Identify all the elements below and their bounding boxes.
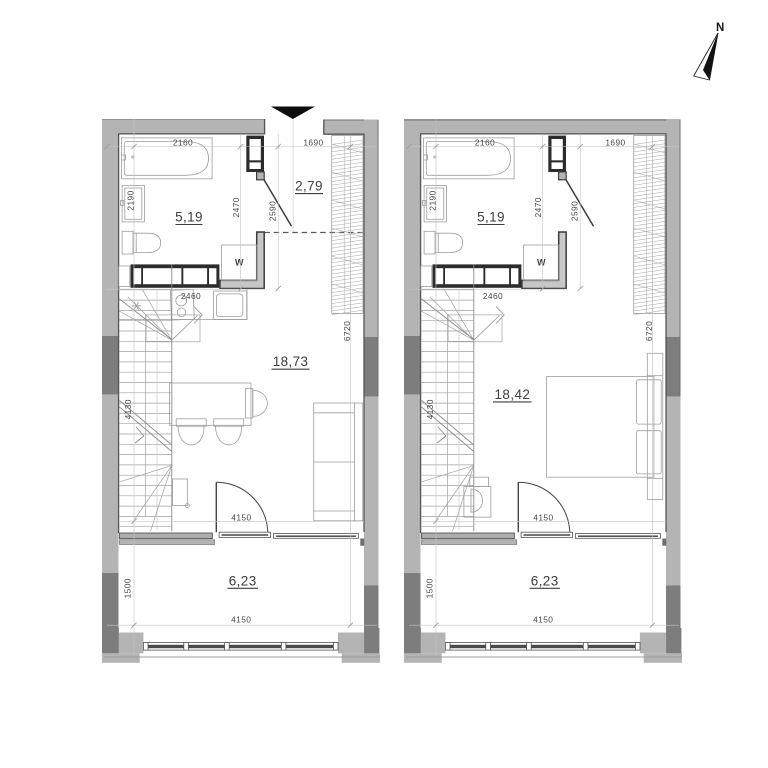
svg-text:4150: 4150 bbox=[533, 512, 553, 522]
svg-text:4150: 4150 bbox=[231, 615, 251, 625]
svg-text:2590: 2590 bbox=[268, 201, 278, 221]
svg-text:1690: 1690 bbox=[605, 137, 625, 147]
svg-text:6,23: 6,23 bbox=[531, 573, 559, 588]
svg-text:W: W bbox=[235, 257, 244, 267]
svg-text:2460: 2460 bbox=[181, 291, 201, 301]
svg-text:2,79: 2,79 bbox=[295, 179, 323, 194]
svg-text:4130: 4130 bbox=[425, 399, 435, 419]
svg-text:4130: 4130 bbox=[123, 399, 133, 419]
svg-text:2160: 2160 bbox=[173, 137, 193, 147]
svg-text:18,42: 18,42 bbox=[495, 387, 531, 402]
svg-text:6720: 6720 bbox=[342, 321, 352, 341]
svg-text:5,19: 5,19 bbox=[477, 210, 505, 225]
svg-text:2470: 2470 bbox=[231, 197, 241, 217]
svg-text:N: N bbox=[716, 22, 724, 34]
svg-text:2190: 2190 bbox=[125, 190, 135, 210]
svg-text:2470: 2470 bbox=[533, 197, 543, 217]
svg-text:1690: 1690 bbox=[303, 137, 323, 147]
svg-text:2160: 2160 bbox=[475, 137, 495, 147]
svg-text:6720: 6720 bbox=[644, 321, 654, 341]
svg-text:18,73: 18,73 bbox=[273, 354, 309, 369]
svg-text:2590: 2590 bbox=[570, 201, 580, 221]
svg-text:4150: 4150 bbox=[231, 512, 251, 522]
svg-text:1500: 1500 bbox=[123, 578, 133, 598]
svg-text:6,23: 6,23 bbox=[229, 573, 257, 588]
svg-text:2460: 2460 bbox=[483, 291, 503, 301]
svg-text:1500: 1500 bbox=[425, 578, 435, 598]
svg-text:4150: 4150 bbox=[533, 615, 553, 625]
svg-text:2190: 2190 bbox=[427, 190, 437, 210]
svg-text:W: W bbox=[537, 257, 546, 267]
svg-text:5,19: 5,19 bbox=[175, 210, 203, 225]
